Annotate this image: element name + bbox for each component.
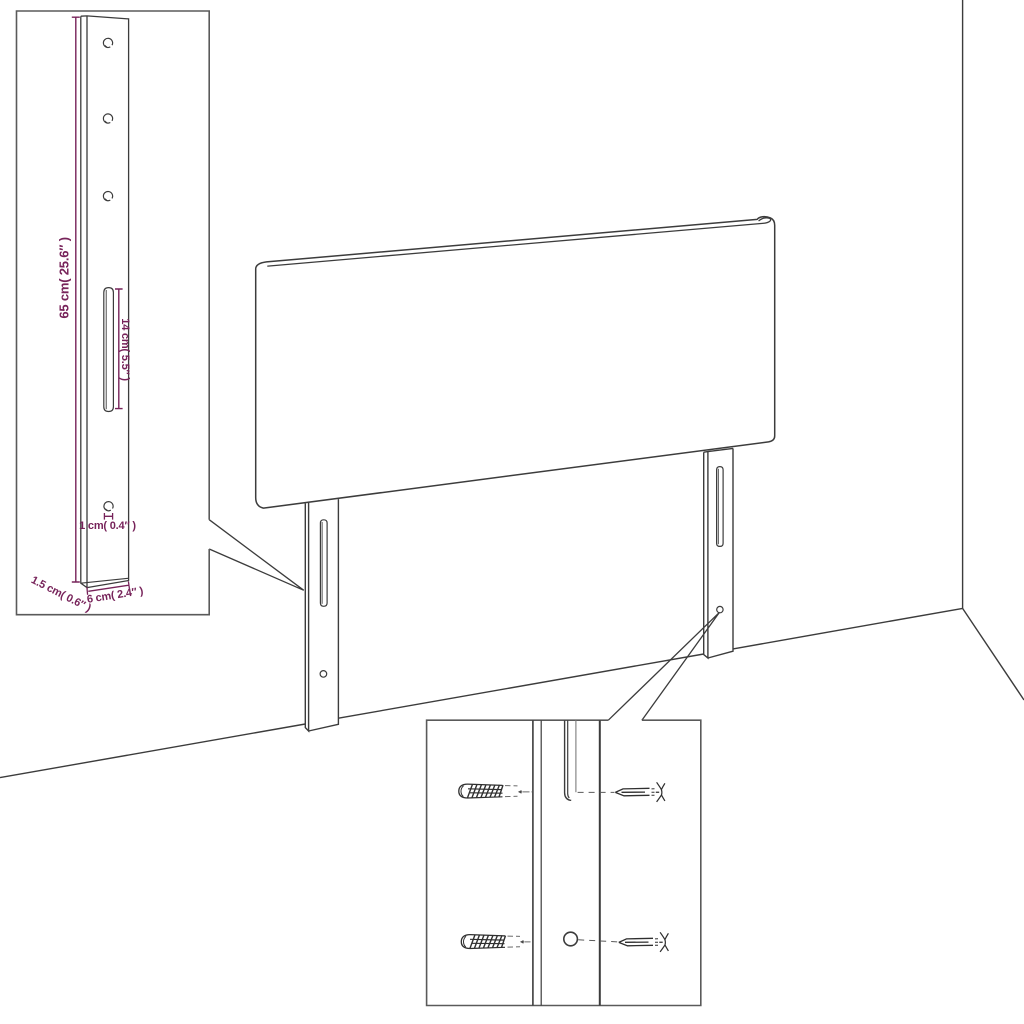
svg-text:1 cm( 0.4″ ): 1 cm( 0.4″ ) [79, 520, 136, 532]
svg-text:65 cm( 25.6″ ): 65 cm( 25.6″ ) [56, 237, 71, 318]
svg-text:14 cm( 5.5″ ): 14 cm( 5.5″ ) [119, 318, 131, 381]
